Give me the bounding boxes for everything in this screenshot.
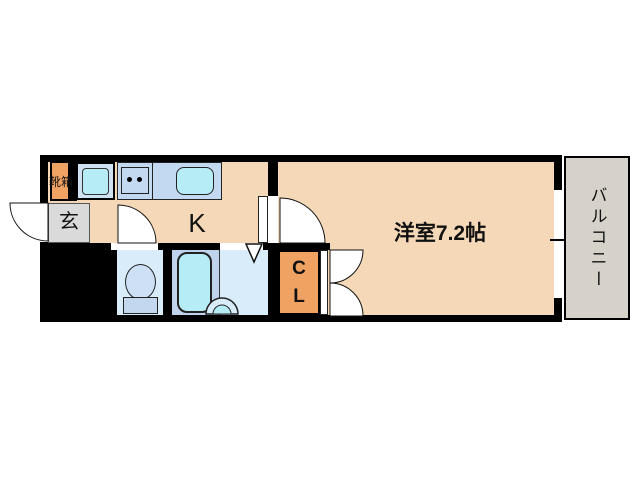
kitchen-sink-icon — [176, 167, 214, 195]
toilet-door-opening — [111, 243, 158, 250]
wall-above-closet — [270, 243, 330, 250]
toilet-icon — [125, 264, 156, 300]
bathtub-icon — [177, 252, 212, 313]
washroom-door-opening — [220, 243, 263, 250]
stove-burner-dot — [137, 177, 142, 182]
entrance-label: 玄 — [49, 212, 89, 232]
toilet-tank-icon — [123, 297, 158, 314]
room-door-opening — [268, 196, 278, 243]
entrance-door-opening — [40, 203, 48, 242]
stove-icon — [121, 167, 149, 194]
balcony-label: バルコニー — [585, 186, 610, 291]
western-room-label: 洋室7.2帖 — [378, 223, 502, 244]
washing-machine-icon — [82, 168, 109, 195]
counter-divider — [152, 162, 153, 200]
kitchen-label: K — [182, 210, 212, 236]
closet-door-jamb — [320, 250, 328, 315]
room-door-jamb — [258, 196, 268, 243]
stove-burner-dot — [127, 177, 132, 182]
balcony-window — [554, 190, 562, 298]
shoe-box-label: 靴箱 — [42, 176, 80, 188]
closet-label: CL — [291, 255, 307, 310]
washroom — [219, 250, 268, 315]
balcony: バルコニー — [564, 156, 630, 320]
floorplan-canvas: バルコニー 靴箱 玄 K 洋室7.2帖 CL — [0, 0, 638, 480]
